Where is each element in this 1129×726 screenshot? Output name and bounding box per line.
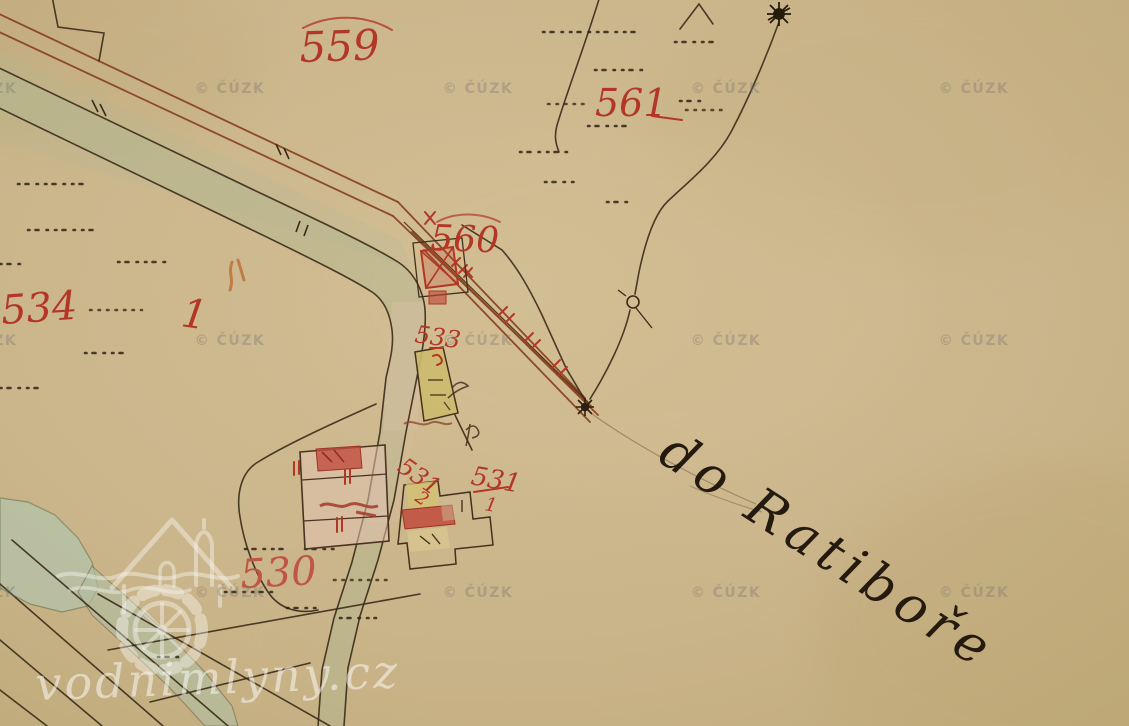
farm-courtyard <box>294 445 389 549</box>
cuzk-watermark: © ČÚZK <box>443 583 514 601</box>
parcel-label-561: 561 <box>595 81 668 125</box>
wooden-part-lower <box>407 527 450 552</box>
cuzk-watermark: © ČÚZK <box>443 331 514 349</box>
parcel-label-559: 559 <box>299 20 381 72</box>
cuzk-watermark: © ČÚZK <box>939 79 1010 97</box>
cuzk-watermark: © ČÚZK <box>0 331 17 349</box>
boundary-star-marker <box>576 398 594 416</box>
cuzk-watermark: © ČÚZK <box>691 583 762 601</box>
cuzk-watermark: © ČÚZK <box>939 331 1010 349</box>
cadastral-map-scan: 559 561 560 534 533 531 2 531 1 530 1 do… <box>0 0 1129 726</box>
cuzk-watermark: © ČÚZK <box>691 79 762 97</box>
cuzk-watermark: © ČÚZK <box>939 583 1010 601</box>
parcel-label-560: 560 <box>430 218 500 261</box>
parcel-label-534: 534 <box>0 283 79 334</box>
wing-part <box>440 494 471 521</box>
cuzk-watermark: © ČÚZK <box>691 331 762 349</box>
red-annex <box>429 291 446 304</box>
cuzk-watermark: © ČÚZK <box>195 583 266 601</box>
cuzk-watermark: © ČÚZK <box>0 583 17 601</box>
cuzk-watermark: © ČÚZK <box>195 331 266 349</box>
masonry-building <box>316 446 362 471</box>
cuzk-watermark: © ČÚZK <box>195 79 266 97</box>
cuzk-watermark: © ČÚZK <box>443 79 514 97</box>
tree-star-symbol <box>767 2 791 26</box>
cuzk-watermark: © ČÚZK <box>0 79 17 97</box>
map-canvas: 559 561 560 534 533 531 2 531 1 530 1 do… <box>0 0 1129 726</box>
